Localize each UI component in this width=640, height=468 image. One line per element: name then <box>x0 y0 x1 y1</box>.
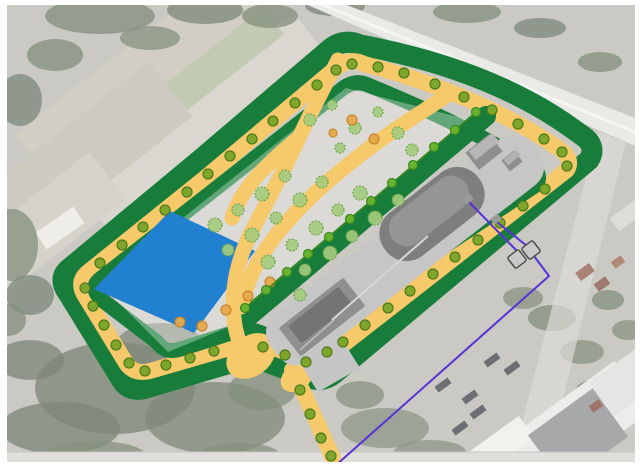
frame-left <box>0 0 7 468</box>
allee-tree <box>262 286 271 295</box>
garden-tree <box>309 221 323 235</box>
allee-tree <box>283 268 292 277</box>
promenade-tree <box>161 360 171 370</box>
garden-tree <box>304 114 316 126</box>
promenade-tree <box>562 161 572 171</box>
promenade-tree <box>88 301 98 311</box>
promenade-tree <box>473 235 483 245</box>
promenade-tree <box>540 184 550 194</box>
orange-tree <box>369 134 379 144</box>
promenade-tree <box>383 303 393 313</box>
allee-tree <box>241 304 250 313</box>
promenade-tree <box>268 116 278 126</box>
promenade-tree <box>117 240 127 250</box>
garden-tree <box>323 246 337 260</box>
promenade-tree <box>111 340 121 350</box>
promenade-tree <box>338 337 348 347</box>
frame-right <box>635 0 640 468</box>
promenade-tree <box>95 258 105 268</box>
promenade-tree <box>459 92 469 102</box>
promenade-tree <box>80 283 90 293</box>
orange-tree <box>221 305 231 315</box>
promenade-tree <box>182 187 192 197</box>
promenade-tree <box>518 201 528 211</box>
promenade-tree <box>513 119 523 129</box>
garden-tree <box>392 194 404 206</box>
promenade-tree <box>124 358 134 368</box>
garden-tree <box>294 289 306 301</box>
frame-top <box>0 0 640 5</box>
promenade-tree <box>428 269 438 279</box>
garden-tree <box>316 176 328 188</box>
promenade-tree <box>247 134 257 144</box>
promenade-tree <box>450 252 460 262</box>
promenade-tree <box>347 59 357 69</box>
masterplan-canvas <box>0 0 640 468</box>
garden-tree <box>270 212 282 224</box>
promenade-tree <box>290 98 300 108</box>
promenade-tree <box>487 105 497 115</box>
promenade-tree <box>225 151 235 161</box>
garden-tree <box>392 127 404 139</box>
allee-tree <box>451 126 460 135</box>
garden-tree <box>332 204 344 216</box>
allee-tree <box>367 197 376 206</box>
exit-path-tree <box>295 385 305 395</box>
promenade-tree <box>258 342 268 352</box>
garden-tree <box>279 170 291 182</box>
allee-tree <box>409 161 418 170</box>
promenade-tree <box>301 357 311 367</box>
orange-tree <box>243 291 253 301</box>
allee-tree <box>304 250 313 259</box>
promenade-tree <box>322 347 332 357</box>
promenade-tree <box>140 366 150 376</box>
promenade-tree <box>539 134 549 144</box>
promenade-tree <box>373 62 383 72</box>
garden-tree <box>299 264 311 276</box>
allee-tree <box>472 108 481 117</box>
garden-tree <box>373 107 383 117</box>
promenade-tree <box>280 350 290 360</box>
promenade-tree <box>360 320 370 330</box>
allee-tree <box>346 215 355 224</box>
promenade-tree <box>331 65 341 75</box>
orange-tree <box>329 129 337 137</box>
promenade-tree <box>160 205 170 215</box>
garden-tree <box>208 218 222 232</box>
allee-tree <box>430 143 439 152</box>
orange-tree <box>347 115 357 125</box>
garden-tree <box>222 244 234 256</box>
exit-path-tree <box>305 409 315 419</box>
garden-tree <box>327 100 337 110</box>
garden-tree <box>232 204 244 216</box>
site-plan-image <box>0 0 640 468</box>
promenade-tree <box>312 80 322 90</box>
garden-tree <box>406 144 418 156</box>
allee-tree <box>325 233 334 242</box>
garden-tree <box>335 143 345 153</box>
garden-tree <box>293 193 307 207</box>
garden-tree <box>353 186 367 200</box>
promenade-tree <box>557 147 567 157</box>
garden-tree <box>368 211 382 225</box>
promenade-tree <box>430 79 440 89</box>
promenade-tree <box>138 222 148 232</box>
garden-tree <box>261 255 275 269</box>
orange-tree <box>175 317 185 327</box>
orange-tree <box>197 321 207 331</box>
allee-tree <box>388 179 397 188</box>
garden-tree <box>245 228 259 242</box>
garden-tree <box>255 187 269 201</box>
promenade-tree <box>405 286 415 296</box>
garden-tree <box>286 239 298 251</box>
promenade-tree <box>99 320 109 330</box>
exit-path-tree <box>316 433 326 443</box>
promenade-tree <box>185 353 195 363</box>
promenade-tree <box>399 68 409 78</box>
exit-path-tree <box>326 451 336 461</box>
garden-tree <box>346 230 358 242</box>
promenade-tree <box>203 169 213 179</box>
promenade-tree <box>209 346 219 356</box>
frame-bottom <box>0 462 640 468</box>
